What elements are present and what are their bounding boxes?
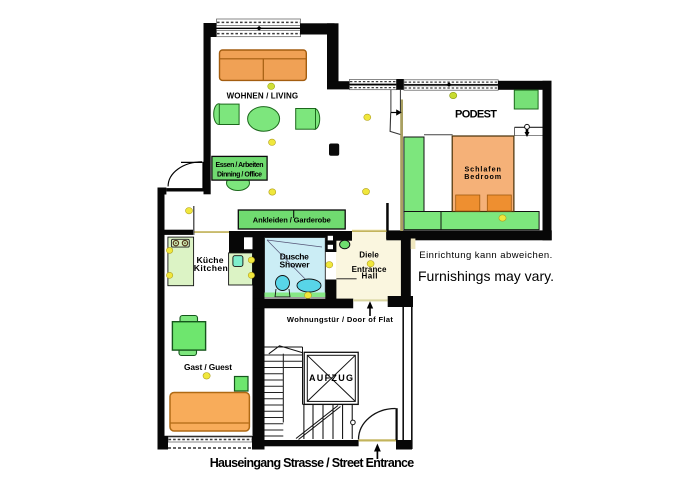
svg-text:Hauseingang Strasse / Street E: Hauseingang Strasse / Street Entrance: [210, 456, 415, 470]
svg-text:Wohnungstür / Door of Flat: Wohnungstür / Door of Flat: [287, 315, 394, 324]
svg-text:Dinning / Office: Dinning / Office: [217, 171, 262, 178]
svg-text:Hall: Hall: [362, 272, 378, 281]
svg-text:Essen / Arbeiten: Essen / Arbeiten: [216, 162, 264, 169]
svg-text:Shower: Shower: [280, 259, 311, 269]
svg-text:Kitchen: Kitchen: [194, 263, 228, 273]
svg-text:Bedroom: Bedroom: [464, 172, 501, 181]
svg-text:Furnishings may vary.: Furnishings may vary.: [418, 268, 554, 284]
svg-text:WOHNEN / LIVING: WOHNEN / LIVING: [227, 92, 299, 101]
svg-text:Ankleiden / Garderobe: Ankleiden / Garderobe: [253, 216, 331, 225]
svg-text:Diele: Diele: [359, 250, 379, 259]
svg-text:PODEST: PODEST: [455, 109, 497, 121]
svg-text:Einrichtung kann abweichen.: Einrichtung kann abweichen.: [419, 250, 552, 261]
svg-text:Gast / Guest: Gast / Guest: [184, 362, 232, 372]
